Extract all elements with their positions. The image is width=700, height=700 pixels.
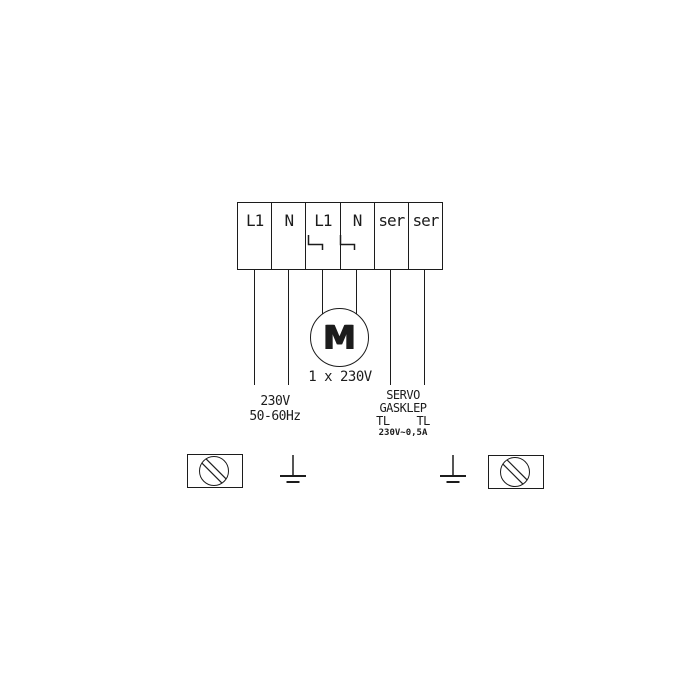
wire-ser-2: [424, 269, 425, 385]
earth-ground-icon: [280, 455, 306, 487]
servo-valve-label: SERVO GASKLEP TL TL 230V~0,5A: [353, 389, 453, 439]
wire-n-supply: [288, 269, 289, 385]
screw-terminal-icon: [488, 455, 544, 489]
jumper-hook-icon: [339, 235, 356, 251]
screw-terminal-icon: [187, 454, 243, 488]
terminal-cell-n-supply: N: [271, 203, 305, 269]
wire-ser-1: [390, 269, 391, 385]
motor-rating-label: 1 x 230V: [285, 369, 395, 385]
jumper-hook-icon: [307, 235, 324, 251]
terminal-label: L1: [314, 211, 331, 230]
wire-l1-supply: [254, 269, 255, 385]
wire-l1-motor: [322, 269, 323, 315]
terminal-label: L1: [246, 211, 263, 230]
terminal-label: N: [284, 211, 293, 230]
servo-label-line3: TL TL: [353, 415, 453, 428]
servo-label-line4: 230V~0,5A: [353, 428, 453, 439]
motor-symbol: M: [310, 308, 369, 367]
terminal-cell-ser-1: ser: [374, 203, 408, 269]
mains-supply-label: 230V 50-60Hz: [230, 394, 320, 424]
wiring-diagram: L1 N L1 N ser ser M 1 x 230V 230V: [0, 0, 700, 700]
mains-frequency: 50-60Hz: [230, 409, 320, 424]
wire-n-motor: [356, 269, 357, 315]
terminal-cell-l1-supply: L1: [238, 203, 271, 269]
terminal-label: N: [353, 211, 362, 230]
motor-letter: M: [323, 321, 356, 354]
terminal-label: ser: [412, 211, 438, 230]
mains-voltage: 230V: [230, 394, 320, 409]
terminal-label: ser: [378, 211, 404, 230]
earth-ground-icon: [440, 455, 466, 487]
terminal-cell-ser-2: ser: [408, 203, 442, 269]
